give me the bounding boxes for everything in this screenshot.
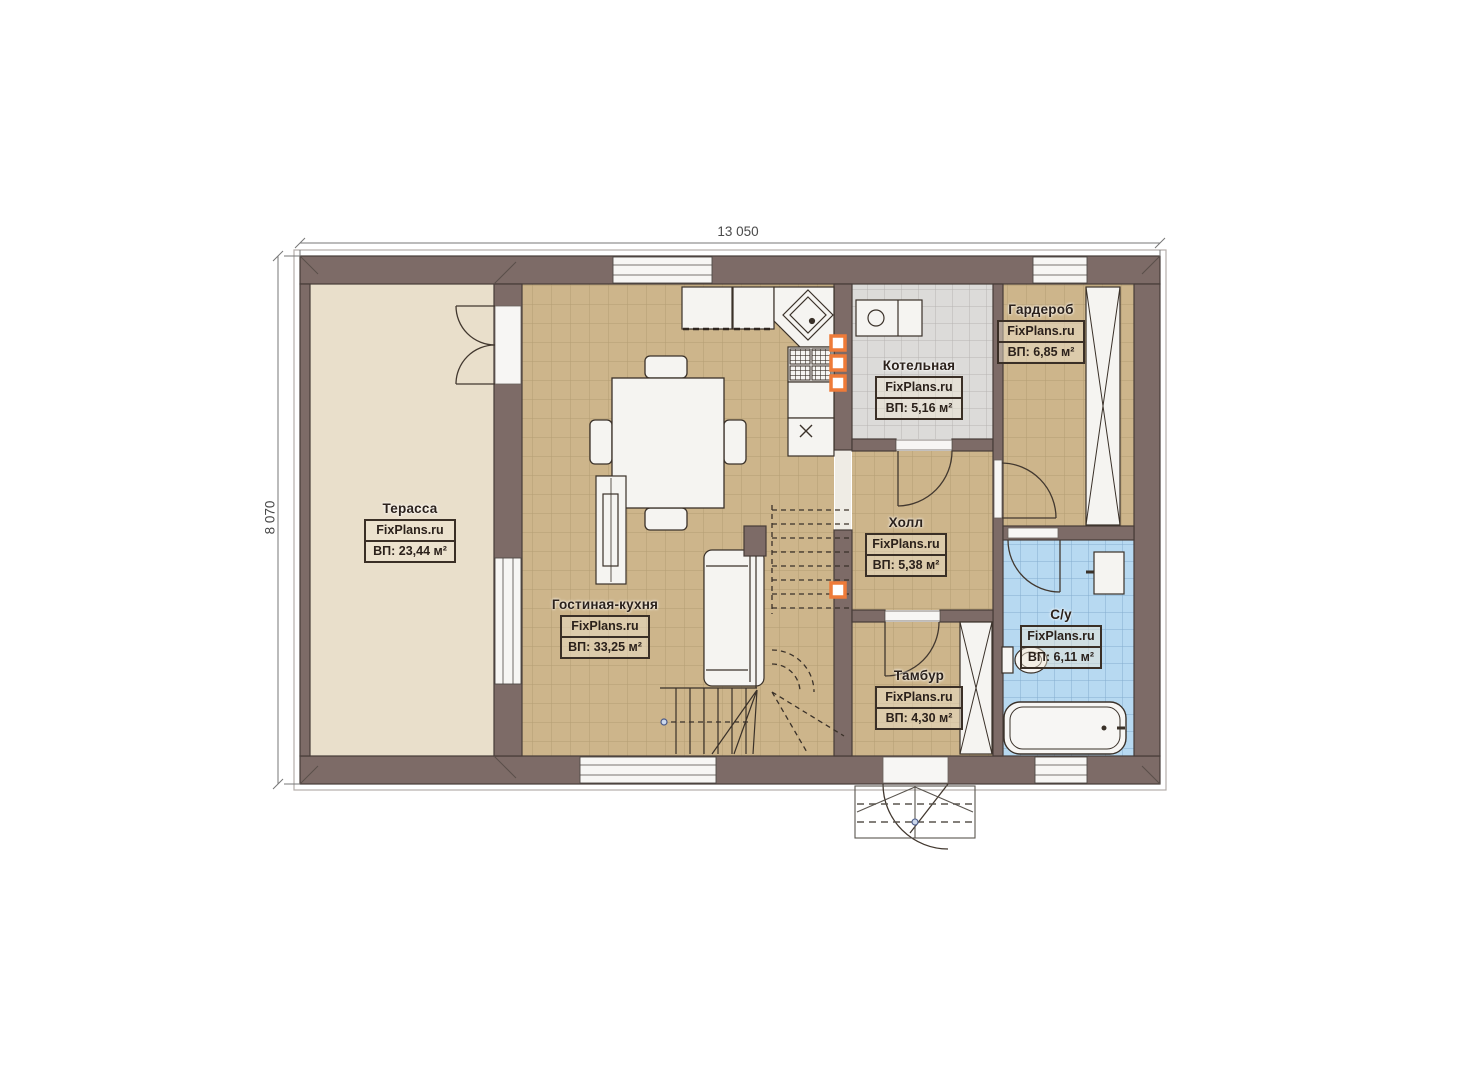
entrance-door-opening: [883, 757, 948, 783]
chair: [645, 356, 687, 378]
wall-boiler-hall-left: [852, 439, 896, 451]
vent-marker-icon: [831, 336, 845, 350]
room-name-living-kitchen: Гостиная-кухня: [552, 597, 658, 612]
room-label-vestibule: Тамбур FixPlans.ru ВП: 4,30 м²: [875, 668, 963, 730]
room-info-box-terrace: FixPlans.ru ВП: 23,44 м²: [364, 519, 456, 563]
floor-plan-drawing: [0, 0, 1473, 1080]
room-area-wardrobe: ВП: 6,85 м²: [999, 343, 1083, 362]
room-info-box-wardrobe: FixPlans.ru ВП: 6,85 м²: [997, 320, 1085, 364]
room-info-box-vestibule: FixPlans.ru ВП: 4,30 м²: [875, 686, 963, 730]
room-area-hall: ВП: 5,38 м²: [867, 556, 945, 575]
wall-bottom: [300, 756, 1160, 784]
dining-table: [612, 378, 724, 508]
room-info-box-living-kitchen: FixPlans.ru ВП: 33,25 м²: [560, 615, 650, 659]
watermark-text: FixPlans.ru: [366, 521, 454, 542]
stair-start-marker: [661, 719, 667, 725]
room-info-box-bathroom: FixPlans.ru ВП: 6,11 м²: [1020, 625, 1102, 669]
watermark-text: FixPlans.ru: [867, 535, 945, 556]
wall-top: [300, 256, 1160, 284]
window-top-living: [613, 257, 712, 283]
wall-right: [1134, 284, 1160, 756]
dimension-height-label: 8 070: [263, 484, 278, 552]
dimension-width-label: 13 050: [692, 224, 784, 239]
room-name-bathroom: С/у: [1050, 607, 1072, 622]
window-bottom-living: [580, 757, 716, 783]
room-area-bathroom: ВП: 6,11 м²: [1022, 648, 1100, 667]
kitchen-upper-cabinet: [682, 287, 732, 329]
room-area-vestibule: ВП: 4,30 м²: [877, 709, 961, 728]
watermark-text: FixPlans.ru: [562, 617, 648, 638]
room-name-vestibule: Тамбур: [894, 668, 944, 683]
vent-marker-icon: [831, 583, 845, 597]
window-bottom-bathroom: [1035, 757, 1087, 783]
wardrobe-door-opening: [994, 460, 1002, 518]
room-label-bathroom: С/у FixPlans.ru ВП: 6,11 м²: [1020, 607, 1102, 669]
wall-boiler-hall-right: [952, 439, 993, 451]
room-label-wardrobe: Гардероб FixPlans.ru ВП: 6,85 м²: [997, 302, 1085, 364]
room-area-terrace: ВП: 23,44 м²: [366, 542, 454, 561]
room-info-box-boiler: FixPlans.ru ВП: 5,16 м²: [875, 376, 963, 420]
watermark-text: FixPlans.ru: [877, 688, 961, 709]
wall-hall-vestibule-right: [940, 610, 993, 622]
boiler-door-opening: [896, 440, 952, 450]
wall-living-hall: [834, 530, 852, 756]
kitchen-dishwasher: [788, 418, 834, 456]
bathroom-door-opening: [1008, 528, 1058, 538]
room-label-living-kitchen: Гостиная-кухня FixPlans.ru ВП: 33,25 м²: [560, 597, 650, 659]
room-name-wardrobe: Гардероб: [1008, 302, 1073, 317]
vestibule-door-opening: [885, 611, 940, 621]
vent-marker-icon: [831, 356, 845, 370]
entrance-porch: [855, 786, 975, 838]
chair: [645, 508, 687, 530]
living-hall-passage: [835, 450, 851, 530]
boiler-unit: [856, 300, 922, 336]
vent-marker-icon: [831, 376, 845, 390]
floor-plan-canvas: 13 050 8 070 Терасса FixPlans.ru ВП: 23,…: [0, 0, 1473, 1080]
wardrobe-closet: [1086, 287, 1120, 525]
bathtub: [1004, 702, 1126, 754]
wall-hall-vestibule-left: [852, 610, 885, 622]
room-info-box-hall: FixPlans.ru ВП: 5,38 м²: [865, 533, 947, 577]
chair: [590, 420, 612, 464]
terrace-door-opening: [495, 306, 521, 384]
room-name-terrace: Терасса: [383, 501, 438, 516]
watermark-text: FixPlans.ru: [1022, 627, 1100, 648]
room-label-hall: Холл FixPlans.ru ВП: 5,38 м²: [865, 515, 947, 577]
vestibule-closet: [960, 622, 992, 754]
room-area-living-kitchen: ВП: 33,25 м²: [562, 638, 648, 657]
watermark-text: FixPlans.ru: [877, 378, 961, 399]
room-area-boiler: ВП: 5,16 м²: [877, 399, 961, 418]
kitchen-upper-cabinet: [733, 287, 774, 329]
kitchen-counter: [788, 382, 834, 418]
room-label-terrace: Терасса FixPlans.ru ВП: 23,44 м²: [364, 501, 456, 563]
window-left-living: [495, 558, 521, 684]
sofa: [704, 550, 764, 686]
room-name-boiler: Котельная: [883, 358, 955, 373]
window-top-wardrobe: [1033, 257, 1087, 283]
watermark-text: FixPlans.ru: [999, 322, 1083, 343]
room-name-hall: Холл: [889, 515, 924, 530]
tv-stand: [596, 476, 626, 584]
room-label-boiler: Котельная FixPlans.ru ВП: 5,16 м²: [875, 358, 963, 420]
stair-newel-wall: [744, 526, 766, 556]
chair: [724, 420, 746, 464]
wall-terrace-left: [300, 284, 310, 756]
